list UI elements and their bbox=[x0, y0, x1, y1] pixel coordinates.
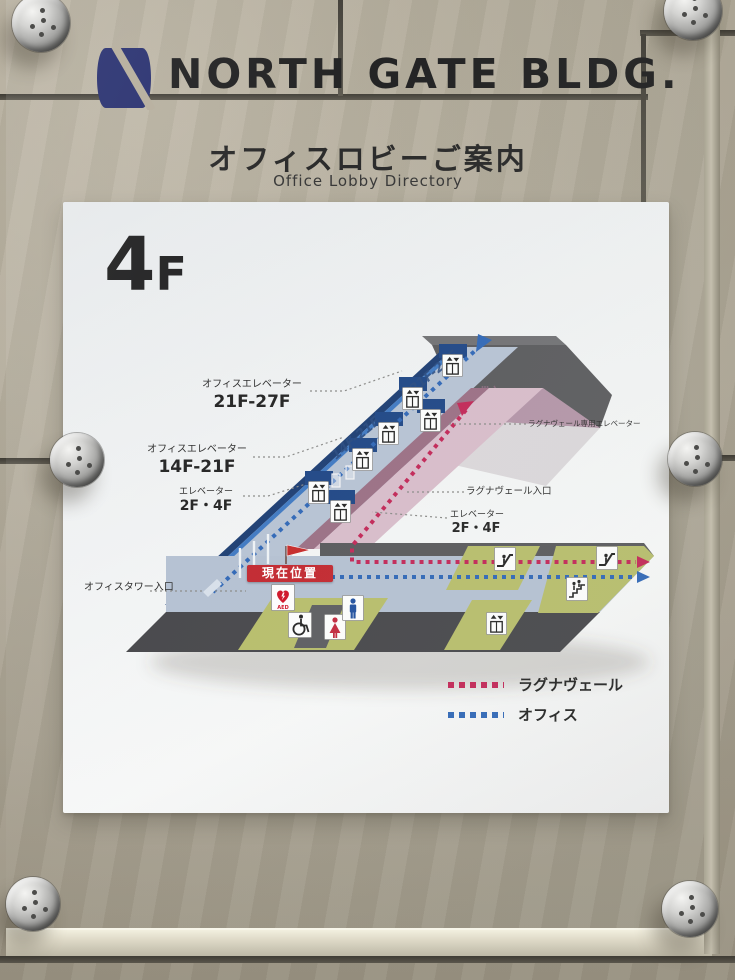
label-office-tower-entrance: オフィスタワー入口 bbox=[84, 582, 202, 595]
north-gate-logo-icon bbox=[90, 46, 158, 110]
legend-lagna: ラグナヴェール bbox=[448, 674, 623, 695]
tile-joint bbox=[0, 956, 735, 963]
label-office-elevator-21-27: オフィスエレベーター 21F-27F bbox=[196, 379, 308, 413]
directory-title-en: Office Lobby Directory bbox=[168, 172, 568, 190]
label-lagna-private-elevator: ラグナヴェール専用エレベーター bbox=[528, 419, 660, 428]
building-name: NORTH GATE BLDG. bbox=[168, 50, 650, 98]
current-location-badge: 現在位置 bbox=[247, 565, 333, 582]
standoff-screw bbox=[668, 432, 722, 486]
photo-of-directory-sign: { "sign": { "building": "NORTH GATE BLDG… bbox=[0, 0, 735, 980]
label-elevator-2-4-left: エレベーター 2F・4F bbox=[168, 487, 244, 516]
legend-lagna-dashes bbox=[448, 682, 504, 688]
floor-number: 4F bbox=[104, 228, 187, 302]
label-office-elevator-14-21: オフィスエレベーター 14F-21F bbox=[141, 444, 253, 478]
label-lagna-entrance: ラグナヴェール入口 bbox=[466, 486, 566, 498]
legend-office: オフィス bbox=[448, 704, 578, 725]
standoff-screw bbox=[50, 433, 104, 487]
standoff-screw bbox=[662, 881, 718, 937]
legend-office-dashes bbox=[448, 712, 504, 718]
glass-bottom-edge bbox=[6, 928, 712, 956]
label-elevator-2-4-right: エレベーター 2F・4F bbox=[450, 510, 520, 538]
standoff-screw bbox=[6, 877, 60, 931]
